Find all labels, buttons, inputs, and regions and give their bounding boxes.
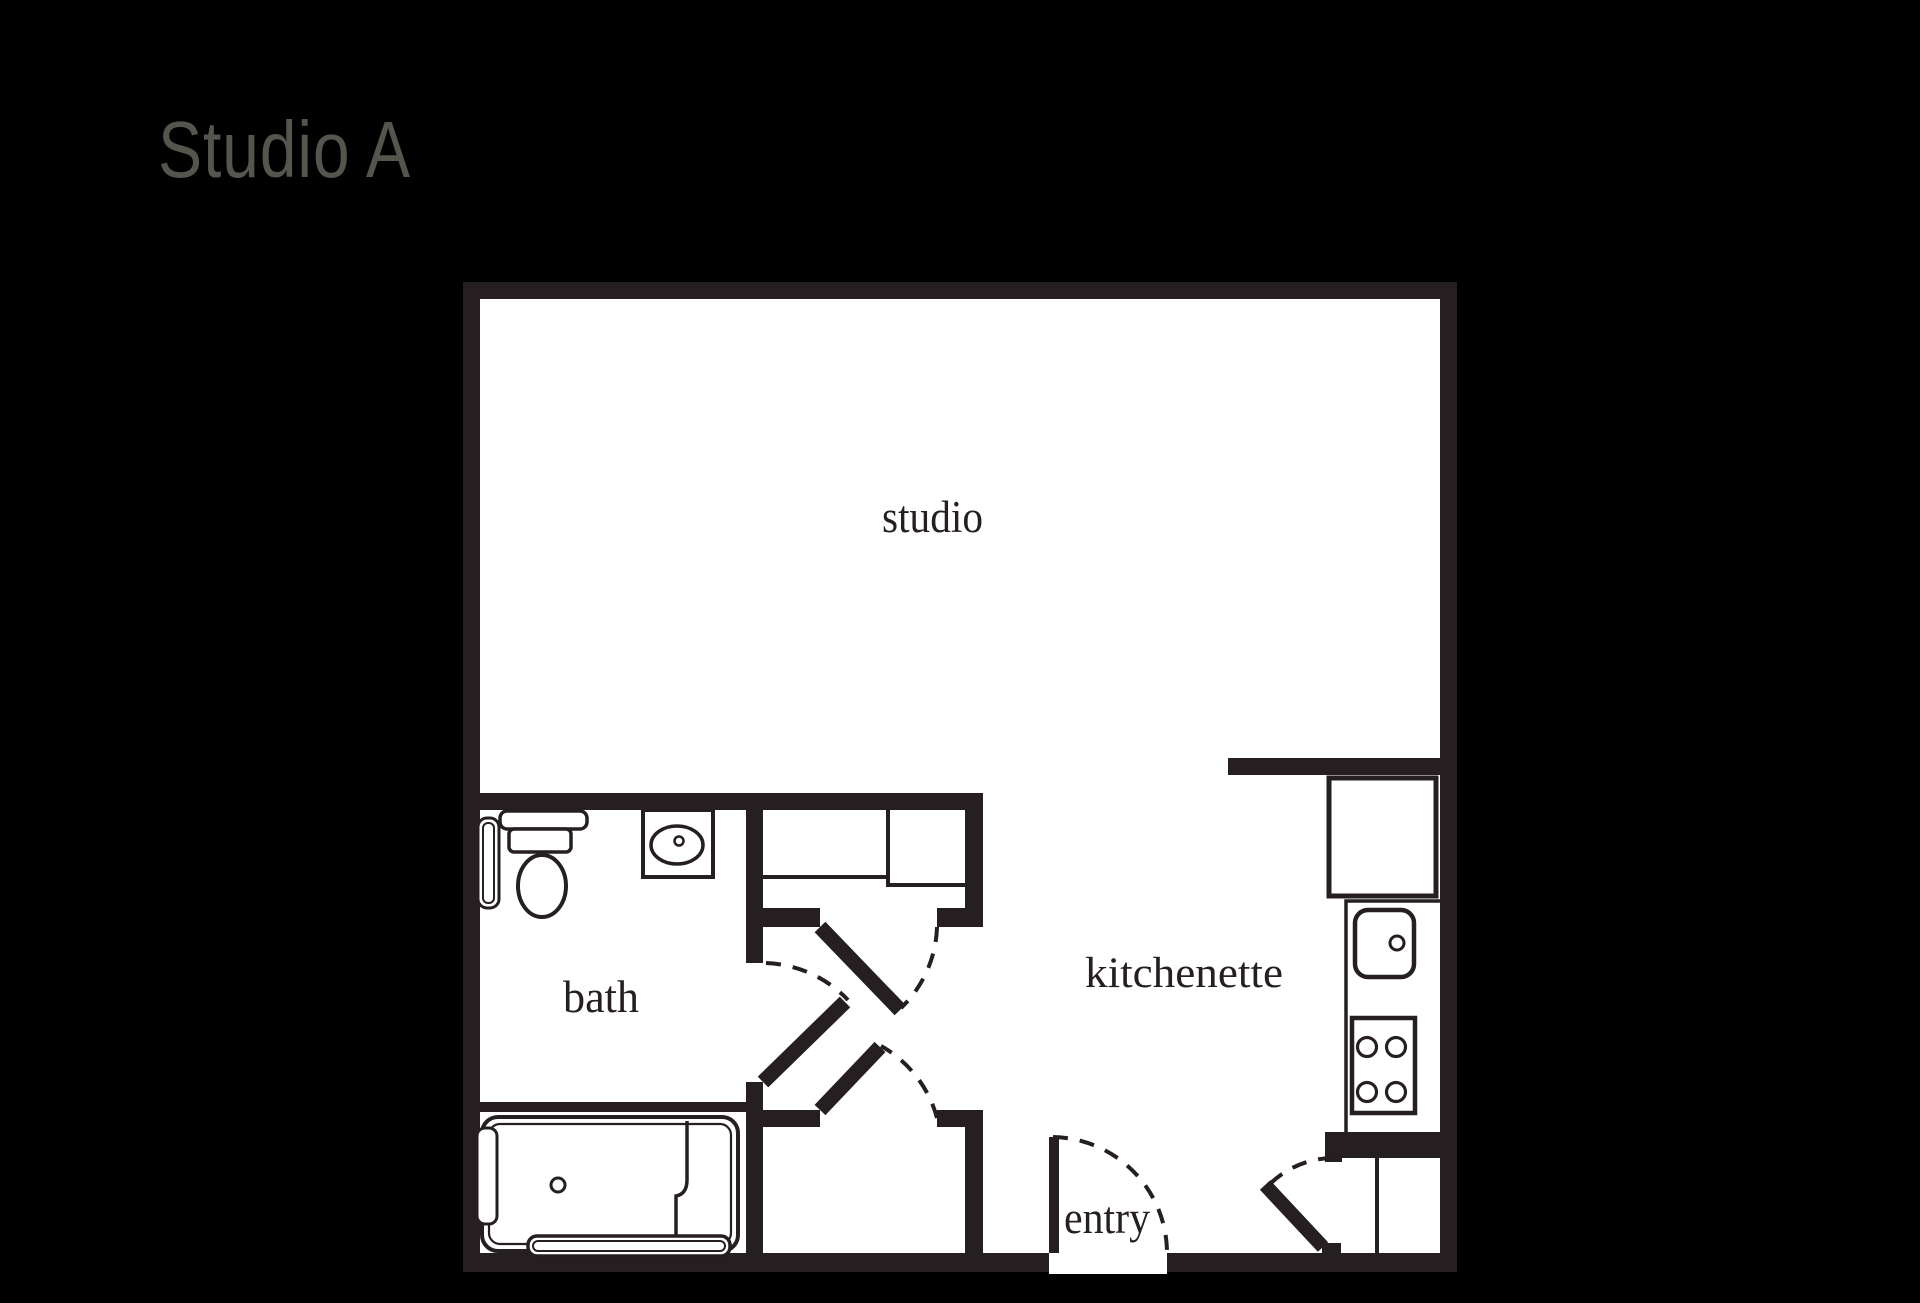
wall-closet-left-jamb [763,908,820,927]
room-label-bath: bath [563,971,639,1022]
wall-kitchenette-north [1228,758,1457,775]
wall-hall-door-right-jamb [937,1110,983,1127]
wall-kitchenette-south [1325,1132,1440,1158]
room-label-studio: studio [882,492,983,542]
wall-entry-west [965,1127,983,1253]
kitchen-sink-drain [1390,936,1404,950]
page-title: Studio A [158,105,411,194]
room-label-kitchenette: kitchenette [1085,950,1283,997]
toilet-base [509,829,571,852]
stove [1352,1018,1415,1113]
tub-faucet-deck [477,1128,497,1224]
floor-plan-svg: Studio A [0,0,1920,1303]
room-label-entry: entry [1064,1193,1150,1243]
kitchen-sink [1355,910,1414,977]
tub-drain [551,1178,565,1192]
bathtub [477,1117,738,1256]
wall-studio-south [463,793,983,810]
tub-outer [482,1117,738,1251]
wall-bath-east-upper [746,810,763,963]
refrigerator [1329,778,1436,896]
wall-closet-right-jamb [937,908,983,927]
wall-hall-door-left-jamb [763,1110,820,1127]
vanity-sink [643,810,713,877]
towel-rail [478,818,499,908]
floor-plan-page: Studio A [0,0,1920,1303]
wall-bath-east-lower [746,1082,763,1253]
wall-tub-alcove [480,1102,746,1112]
vanity-drain [675,837,684,846]
toilet-tank [500,811,587,829]
toilet-bowl [518,855,566,917]
entry-door-panel [1049,1137,1059,1253]
tub-apron [528,1236,730,1256]
entry-threshold [1049,1253,1167,1274]
